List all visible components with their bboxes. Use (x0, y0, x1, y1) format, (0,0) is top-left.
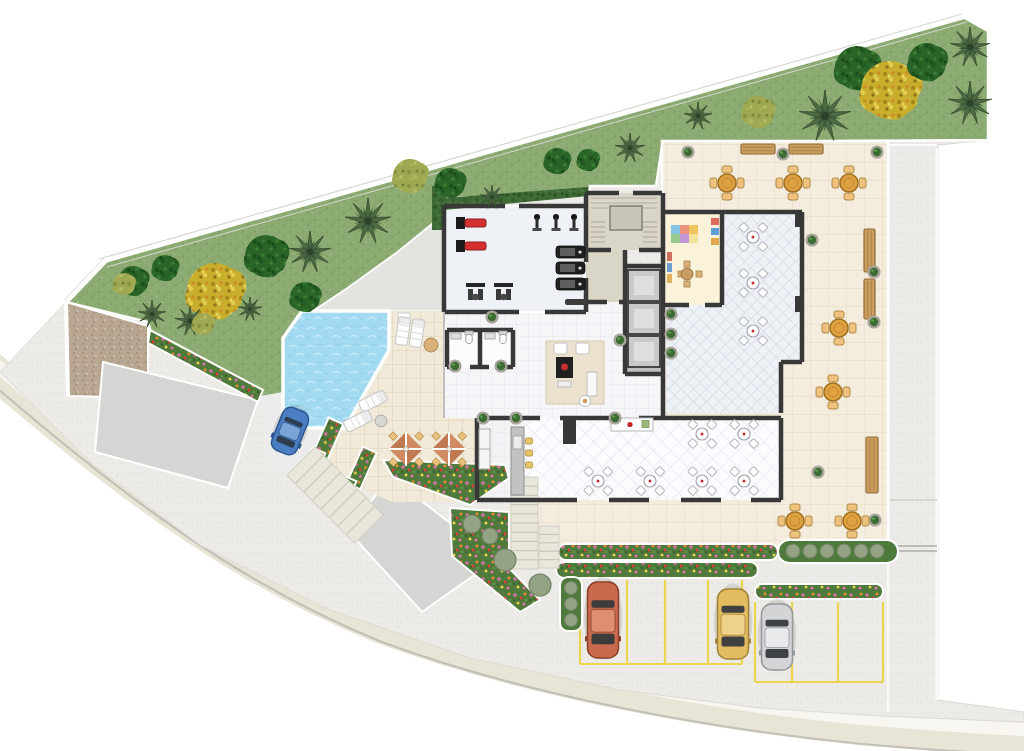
trimmed-shrub (482, 528, 498, 544)
plant (666, 329, 677, 340)
table-centerpiece (743, 433, 746, 436)
kids-chair (684, 281, 690, 287)
bench (789, 144, 823, 154)
table-centerpiece (701, 480, 704, 483)
boundary-line (66, 302, 68, 397)
potted-plant (615, 335, 626, 346)
tree-canopy (164, 265, 177, 278)
bath-sink (451, 333, 461, 339)
table-centerpiece (597, 480, 600, 483)
palm-trunk (188, 319, 193, 324)
plant (610, 413, 621, 424)
umbrella-pole (447, 447, 452, 452)
kids-table (681, 268, 693, 280)
umbrella-table (389, 432, 424, 467)
exercise-bike (552, 228, 561, 231)
chair (828, 402, 838, 409)
chair (722, 166, 732, 173)
chair (847, 531, 857, 538)
table-centerpiece (743, 480, 746, 483)
stair-vestibule (586, 250, 625, 302)
chair (844, 166, 854, 173)
site-floor-plan (0, 0, 1024, 751)
table-centerpiece (752, 236, 755, 239)
toy-shelf (667, 252, 672, 261)
umbrella-pole (404, 447, 409, 452)
car-mirror (759, 650, 762, 655)
plant-highlight (780, 151, 783, 154)
tree-canopy (123, 282, 134, 293)
desk-item (642, 421, 649, 428)
tree-canopy (202, 322, 213, 333)
car-mirror (585, 636, 588, 641)
palm-trunk (967, 44, 973, 50)
car-roof (765, 628, 789, 648)
elevator-cab-floor (634, 342, 654, 361)
tree-canopy (926, 58, 945, 77)
plant (869, 267, 880, 278)
table-top (843, 512, 861, 530)
bench (866, 437, 878, 493)
plant-highlight (871, 319, 874, 322)
potted-plant (666, 309, 677, 320)
bar-stool (526, 462, 533, 468)
weight-rack (456, 217, 465, 229)
tree-canopy (889, 84, 918, 113)
plant-highlight (498, 363, 501, 366)
plant (870, 515, 881, 526)
chair (844, 193, 854, 200)
trimmed-shrub (494, 549, 516, 571)
trimmed-shrub (565, 614, 578, 627)
chair (778, 516, 785, 526)
tree-canopy (757, 109, 773, 125)
plant (683, 147, 694, 158)
trimmed-shrub (565, 598, 578, 611)
bench-press (465, 219, 486, 227)
table-centerpiece (752, 330, 755, 333)
plant (615, 335, 626, 346)
chair (835, 516, 842, 526)
trimmed-shrub (837, 544, 851, 558)
bench-press (465, 242, 486, 250)
palm-trunk (307, 249, 313, 255)
car-windshield (766, 649, 789, 658)
plant (478, 413, 489, 424)
weight-machine (478, 289, 483, 300)
plant (487, 312, 498, 323)
plant-highlight (872, 517, 875, 520)
potted-plant (872, 147, 883, 158)
flower-band-a (558, 544, 778, 560)
potted-plant (807, 235, 818, 246)
potted-plant (610, 413, 621, 424)
deck-table-round (424, 338, 438, 352)
trimmed-shrub (786, 544, 800, 558)
chair (790, 504, 800, 511)
chair (832, 178, 839, 188)
car-roof (721, 614, 745, 635)
table-top (840, 174, 858, 192)
toy-shelf (711, 228, 719, 235)
trimmed-shrub (529, 574, 551, 596)
chair (788, 193, 798, 200)
potted-plant (869, 317, 880, 328)
chair (843, 387, 850, 397)
table-top (824, 383, 842, 401)
potted-plant (478, 413, 489, 424)
treadmill-belt (560, 248, 575, 256)
car-rear-window (592, 600, 615, 608)
flower-band-b (556, 562, 758, 578)
elevator-cab-floor (634, 276, 654, 295)
plant (511, 413, 522, 424)
coffee-table (558, 381, 571, 387)
flower-band-c (755, 584, 883, 599)
wall-pillar (795, 296, 803, 312)
tree-canopy (409, 173, 426, 190)
flower-band-a (558, 544, 778, 560)
potted-plant (683, 147, 694, 158)
side-table-top (583, 399, 588, 404)
chair (859, 178, 866, 188)
chair (862, 516, 869, 526)
potted-plant (666, 329, 677, 340)
weight-machine (466, 283, 485, 287)
umbrella-table (432, 432, 467, 467)
desk-item (627, 422, 632, 427)
car-mirror (715, 639, 718, 644)
weight-machine (494, 283, 513, 287)
play-mat (671, 234, 680, 243)
chair (816, 387, 823, 397)
toy-shelf (667, 263, 672, 272)
kids-chair (684, 261, 690, 267)
treadmill-dot (578, 266, 581, 269)
chair (822, 323, 829, 333)
plant-highlight (871, 269, 874, 272)
tree-canopy (304, 294, 319, 309)
palm-trunk (696, 114, 700, 118)
table-top (718, 174, 736, 192)
treadmill-dot (578, 282, 581, 285)
chair (834, 338, 844, 345)
trimmed-shrub (870, 544, 884, 558)
exercise-bike (536, 218, 539, 229)
weight-machine (496, 289, 501, 300)
wall-pillar (563, 418, 576, 444)
toy-shelf (711, 218, 719, 225)
exercise-bike (555, 218, 558, 229)
treadmill-belt (560, 264, 575, 272)
wall-pillar (795, 212, 803, 227)
toilet (466, 334, 473, 343)
palm-trunk (628, 146, 633, 151)
tv-screen-dot (561, 364, 568, 371)
car-rear-window (722, 606, 745, 613)
bench-seat (864, 279, 875, 319)
palm-trunk (365, 218, 372, 225)
bath-sink (485, 333, 495, 339)
palm-trunk (967, 100, 974, 107)
lounger-pillow (413, 319, 424, 325)
trimmed-shrub (820, 544, 834, 558)
plant (666, 348, 677, 359)
chair (790, 531, 800, 538)
plant (813, 467, 824, 478)
armchair (576, 343, 589, 354)
stair-landing (610, 206, 642, 230)
chair (776, 178, 783, 188)
plant (450, 361, 461, 372)
chair (737, 178, 744, 188)
plant-highlight (668, 350, 671, 353)
bench-seat (741, 144, 775, 154)
bench (741, 144, 775, 154)
armchair (554, 343, 567, 354)
car-mirror (748, 639, 751, 644)
plant-highlight (668, 311, 671, 314)
weight-machine (468, 289, 473, 300)
plant-highlight (612, 415, 615, 418)
chair (788, 166, 798, 173)
tree-canopy (449, 180, 464, 195)
play-mat (671, 225, 680, 234)
car-rear-window (766, 620, 789, 627)
potted-plant (450, 361, 461, 372)
play-mat (680, 225, 689, 234)
trimmed-shrub (565, 582, 578, 595)
plant-highlight (489, 314, 492, 317)
deck-table-round (375, 415, 387, 427)
potted-plant (511, 413, 522, 424)
plant-highlight (513, 415, 516, 418)
potted-plant (666, 348, 677, 359)
potted-plant (813, 467, 824, 478)
plant-highlight (809, 237, 812, 240)
floor-plan-canvas (0, 0, 1024, 751)
chair (847, 504, 857, 511)
table-top (830, 319, 848, 337)
play-mat (680, 234, 689, 243)
chair (803, 178, 810, 188)
potted-plant (496, 361, 507, 372)
bar-stool (526, 450, 533, 456)
bench-seat (789, 144, 823, 154)
trimmed-shrub (854, 544, 868, 558)
palm-trunk (821, 112, 829, 120)
palm-trunk (490, 195, 494, 199)
stair-vestibule (586, 250, 625, 302)
plant-highlight (617, 337, 620, 340)
car-silver (758, 599, 796, 672)
tree-canopy (556, 158, 569, 171)
exercise-bike (533, 228, 542, 231)
lounger-pillow (399, 317, 410, 323)
weight-machine-seat (472, 294, 478, 300)
plant-highlight (668, 331, 671, 334)
car-windshield (722, 637, 745, 647)
exercise-bike (570, 228, 579, 231)
table-centerpiece (752, 282, 755, 285)
weight-machine-seat (500, 294, 506, 300)
console-bench (587, 372, 597, 396)
exercise-bike (573, 218, 576, 229)
car-yellow (714, 584, 752, 661)
bar-stool (526, 438, 533, 444)
treadmill-belt (560, 280, 575, 288)
gym-bench (565, 299, 586, 305)
plant (869, 317, 880, 328)
plant-highlight (685, 149, 688, 152)
bar-sink (513, 436, 522, 449)
chair (805, 516, 812, 526)
plant-highlight (815, 469, 818, 472)
plant-highlight (874, 149, 877, 152)
treadmill-dot (578, 250, 581, 253)
palm-trunk (150, 312, 154, 316)
plant (666, 309, 677, 320)
table-top (786, 512, 804, 530)
potted-plant (487, 312, 498, 323)
table-centerpiece (701, 433, 704, 436)
potted-plant (869, 267, 880, 278)
plant-highlight (480, 415, 483, 418)
bench (864, 279, 875, 319)
chair (710, 178, 717, 188)
trimmed-shrub (803, 544, 817, 558)
car-mirror (792, 650, 795, 655)
play-mat (689, 234, 698, 243)
toilet (500, 334, 507, 343)
plant (872, 147, 883, 158)
table-centerpiece (649, 480, 652, 483)
plant (807, 235, 818, 246)
play-mat (689, 225, 698, 234)
chair (722, 193, 732, 200)
tree-canopy (214, 285, 242, 313)
car-windshield (592, 634, 615, 645)
stairs-base (539, 526, 559, 568)
car-orange (584, 576, 622, 660)
toy-shelf (667, 274, 672, 283)
palm-trunk (248, 307, 252, 311)
weight-rack (456, 240, 465, 252)
car-mirror (618, 636, 621, 641)
potted-plant (870, 515, 881, 526)
chair (849, 323, 856, 333)
potted-plant (778, 149, 789, 160)
tree-canopy (265, 252, 286, 273)
flower-band-c (755, 584, 883, 599)
flower-band-b (556, 562, 758, 578)
tree-canopy (587, 158, 598, 169)
bench-seat (866, 437, 878, 493)
plant-highlight (452, 363, 455, 366)
plant (778, 149, 789, 160)
stairs (539, 526, 559, 568)
trimmed-shrub (463, 515, 481, 533)
weight-machine (506, 289, 511, 300)
chair (834, 311, 844, 318)
elevator-cab-floor (634, 309, 654, 328)
plant (496, 361, 507, 372)
toy-shelf (711, 238, 719, 245)
chair (828, 375, 838, 382)
kids-chair (696, 271, 702, 277)
table-top (784, 174, 802, 192)
car-roof (591, 609, 615, 632)
